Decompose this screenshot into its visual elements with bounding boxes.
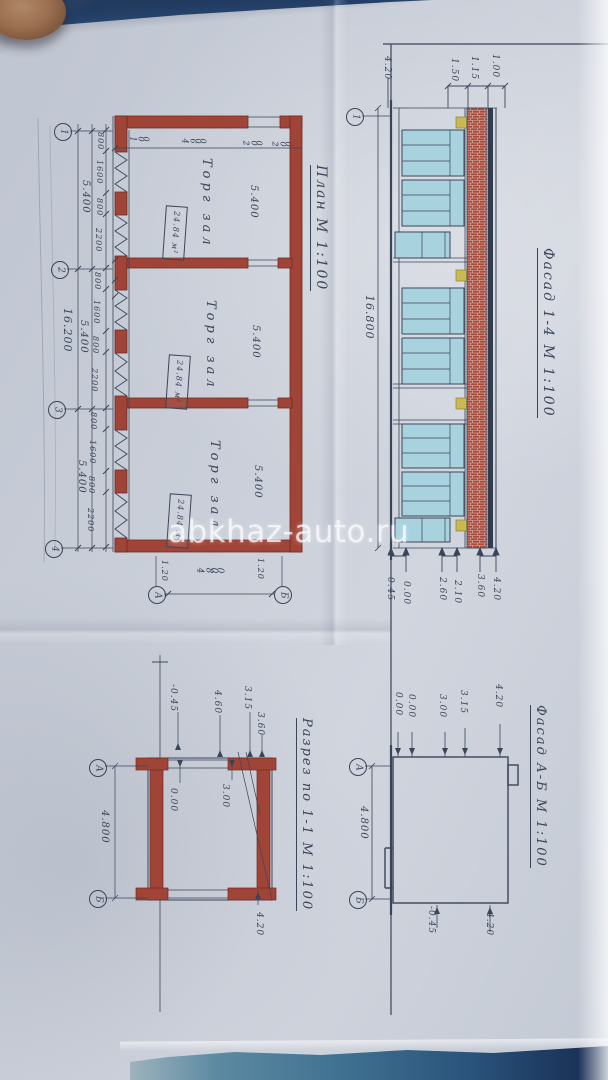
room-width-dim: 5.400 <box>248 185 258 219</box>
razrez-axis-marker-b: Б <box>89 890 107 908</box>
fasad-level-mark: 2.10 <box>452 580 461 604</box>
fasad-width-dim: 1.50 <box>449 58 458 82</box>
plan-front-dim: 2.00 <box>243 139 261 147</box>
axis-marker-2: 2 <box>51 261 69 279</box>
overexposed-right-edge <box>578 0 608 1080</box>
fasad-ab-level-mark: 0.00 <box>406 694 415 718</box>
room-width-dim: 5.400 <box>250 325 260 359</box>
razrez-title: Разрез по 1-1 М 1:100 <box>296 718 313 911</box>
plan-spacing-dim: 5.400 <box>78 320 88 354</box>
plan-window-dim: 800 <box>87 476 95 494</box>
fasad-ab-level-mark: 4.20 <box>493 684 502 708</box>
fasad-level-mark: 3.60 <box>475 574 484 598</box>
plan-edge-dim: 1.20 <box>160 560 168 582</box>
room-width-dim: 5.400 <box>252 465 262 499</box>
watermark: abkhaz-auto.ru <box>168 514 409 550</box>
razrez-depth-dim: 4.800 <box>99 810 109 844</box>
razrez-ceiling-level: 3.00 <box>220 784 229 808</box>
fasad-ab-axis-marker-b: Б <box>349 891 367 909</box>
fasad-ab-axis-marker-a: А <box>349 758 367 776</box>
axis-marker-3: 3 <box>48 401 66 419</box>
plan-total-dim: 16.200 <box>62 308 73 353</box>
plan-front-dim: 1.00 <box>130 135 148 143</box>
plan-window-dim: 800 <box>93 272 101 290</box>
fasad-ab-level-mark: 3.00 <box>437 694 446 718</box>
room-area-box: 24.84 м² <box>162 205 188 260</box>
fasad-a-b-title: Фасад А-Б М 1:100 <box>530 705 547 868</box>
plan-spacing-dim: 5.400 <box>76 460 86 494</box>
fasad-top-level: 4.20 <box>382 56 391 80</box>
fasad-ab-level-mark: -0.45 <box>426 906 435 934</box>
fasad-length-dim: 16.800 <box>364 295 375 340</box>
plan-window-dim: 800 <box>91 336 99 354</box>
fasad-width-dim: 1.00 <box>490 54 499 78</box>
plan-window-dim: 2200 <box>86 508 94 532</box>
plan-depth-dim: 4.800 <box>196 566 222 575</box>
fasad-1-4-title: Фасад 1-4 М 1:100 <box>537 248 555 418</box>
fasad-level-mark: 0.00 <box>401 581 410 605</box>
fasad-width-dim: 1.15 <box>469 56 478 80</box>
blueprint-photo: План М 1:100 Фасад 1-4 М 1:100 Разрез по… <box>0 0 608 1080</box>
razrez-level-mark: 3.15 <box>242 686 251 710</box>
plan-front-dim: 4.600 <box>182 137 205 145</box>
room-label: Торг зал <box>204 300 217 391</box>
plan-window-dim: 800 <box>89 412 97 430</box>
razrez-bottom-level: 4.20 <box>254 912 263 936</box>
razrez-axis-marker-a: А <box>89 759 107 777</box>
plan-window-dim: 1600 <box>92 300 100 324</box>
plan-edge-dim: 1.20 <box>256 558 264 580</box>
fasad-level-mark: 0.45 <box>385 577 394 601</box>
fasad-ab-level-mark: 4.20 <box>484 912 493 936</box>
room-area-value: 24.84 м² <box>170 211 181 255</box>
plan-window-dim: 1600 <box>95 160 103 184</box>
room-area-box: 24.84 м² <box>165 354 191 409</box>
room-area-value: 24.84 м² <box>173 360 184 404</box>
plan-title: План М 1:100 <box>310 165 328 291</box>
plan-spacing-dim: 5.400 <box>80 180 90 214</box>
fasad-axis-marker-1: 1 <box>346 108 364 126</box>
axis-marker-a: А <box>148 586 166 604</box>
plan-front-dim: 2.00 <box>272 140 290 148</box>
axis-marker-b: Б <box>274 586 292 604</box>
fasad-ab-level-mark: 0.00 <box>393 692 402 716</box>
razrez-floor-level: 0.00 <box>168 788 177 812</box>
fasad-level-mark: 2.60 <box>437 577 446 601</box>
plan-window-dim: 2200 <box>90 368 98 392</box>
plan-window-dim: 800 <box>96 132 104 150</box>
fasad-ab-level-mark: 3.15 <box>458 690 467 714</box>
fasad-ab-depth-dim: 4.800 <box>358 806 368 840</box>
plan-window-dim: 2200 <box>94 228 102 252</box>
razrez-level-mark: 3.60 <box>255 712 264 736</box>
axis-marker-4: 4 <box>45 540 63 558</box>
axis-marker-1: 1 <box>54 123 72 141</box>
plan-window-dim: 800 <box>95 198 103 216</box>
razrez-level-mark: -0.45 <box>168 684 177 712</box>
fasad-level-mark: 4.20 <box>491 577 500 601</box>
plan-window-dim: 1600 <box>88 440 96 464</box>
razrez-level-mark: 4.60 <box>212 690 221 714</box>
room-label: Торг зал <box>200 158 213 249</box>
